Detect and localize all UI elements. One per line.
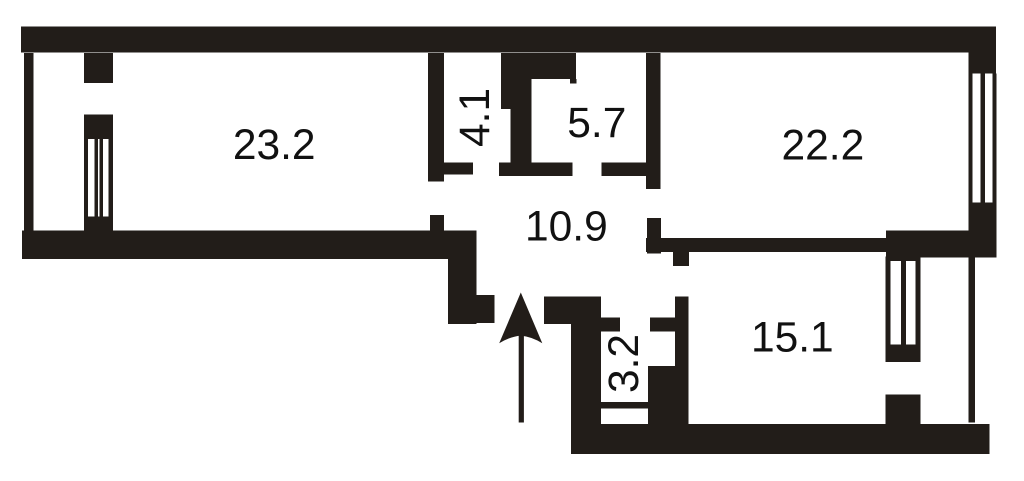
svg-text:5.7: 5.7: [567, 100, 626, 147]
svg-text:3.2: 3.2: [601, 334, 648, 393]
svg-text:10.9: 10.9: [525, 204, 608, 251]
svg-text:22.2: 22.2: [782, 123, 865, 170]
svg-text:15.1: 15.1: [751, 315, 834, 362]
svg-text:4.1: 4.1: [452, 88, 499, 147]
svg-text:23.2: 23.2: [233, 122, 316, 169]
